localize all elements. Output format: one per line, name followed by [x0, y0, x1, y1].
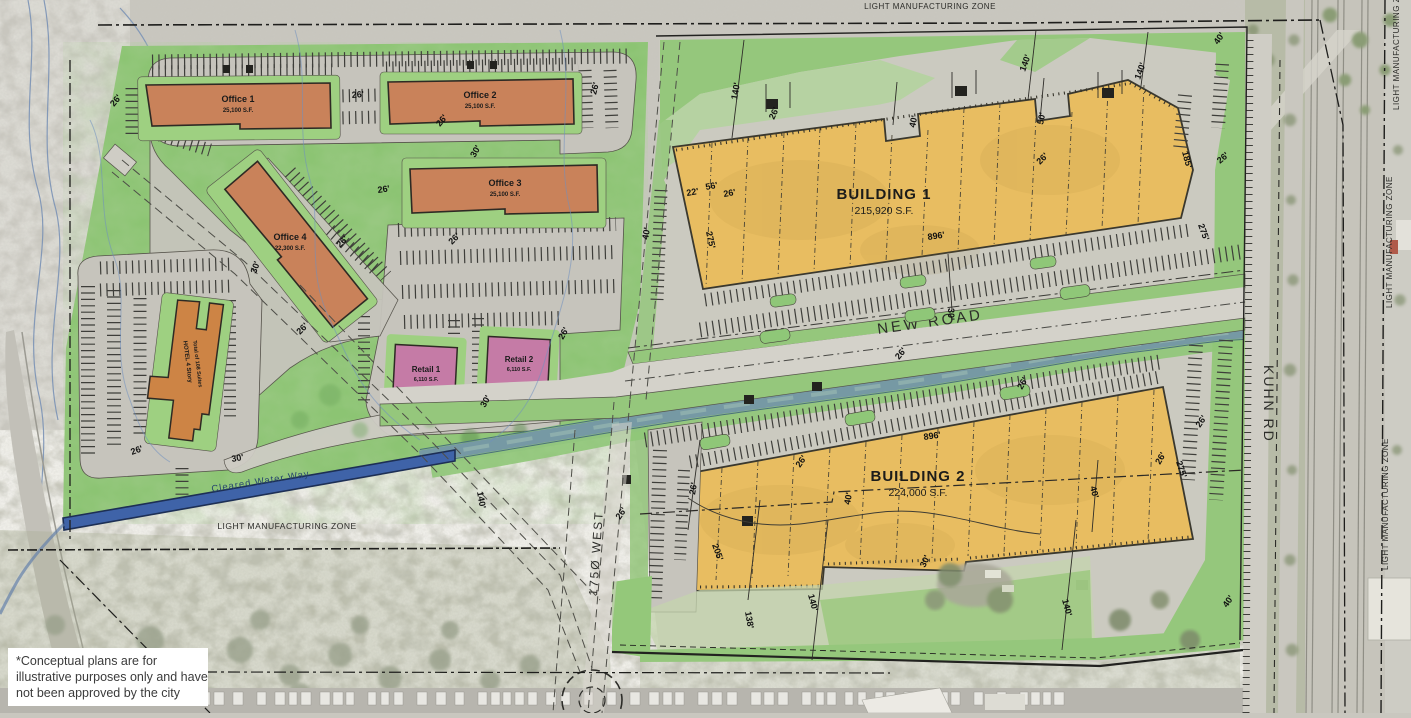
svg-text:LIGHT MANUFACTURING ZONE: LIGHT MANUFACTURING ZONE [1392, 0, 1401, 110]
svg-text:224,000 S.F.: 224,000 S.F. [889, 487, 948, 499]
svg-text:25,100 S.F.: 25,100 S.F. [465, 104, 496, 110]
svg-text:40': 40' [842, 492, 854, 506]
svg-text:25,100 S.F.: 25,100 S.F. [223, 108, 254, 114]
svg-text:LIGHT MANUFACTURING ZONE: LIGHT MANUFACTURING ZONE [1381, 438, 1390, 570]
svg-text:6,110 S.F.: 6,110 S.F. [507, 367, 532, 373]
svg-text:22': 22' [686, 186, 700, 198]
svg-text:6,110 S.F.: 6,110 S.F. [414, 377, 439, 383]
svg-text:LIGHT MANUFACTURING ZONE: LIGHT MANUFACTURING ZONE [864, 2, 996, 11]
svg-text:LIGHT MANUFACTURING ZONE: LIGHT MANUFACTURING ZONE [217, 521, 356, 531]
svg-text:Retail 1: Retail 1 [412, 365, 441, 374]
svg-text:Office 2: Office 2 [463, 90, 496, 100]
svg-text:Retail 2: Retail 2 [505, 355, 534, 364]
svg-text:Office 1: Office 1 [221, 94, 254, 104]
svg-text:30': 30' [946, 308, 956, 320]
svg-text:26': 26' [723, 187, 737, 199]
svg-text:30': 30' [231, 452, 245, 464]
svg-text:LIGHT MANUFACTURING ZONE: LIGHT MANUFACTURING ZONE [1385, 176, 1394, 308]
svg-text:not been approved by the city: not been approved by the city [16, 686, 181, 700]
svg-text:illustrative purposes only and: illustrative purposes only and have [16, 670, 208, 684]
svg-text:215,920 S.F.: 215,920 S.F. [855, 205, 914, 217]
svg-text:26': 26' [377, 183, 390, 195]
svg-text:BUILDING 2: BUILDING 2 [870, 468, 965, 485]
svg-text:56': 56' [705, 180, 719, 192]
svg-text:22,300 S.F.: 22,300 S.F. [275, 246, 306, 252]
svg-text:25,100 S.F.: 25,100 S.F. [490, 192, 521, 198]
svg-text:26': 26' [687, 482, 699, 496]
svg-text:Office 4: Office 4 [273, 232, 306, 242]
svg-text:Office 3: Office 3 [488, 178, 521, 188]
svg-text:26': 26' [351, 89, 364, 100]
svg-text:40': 40' [640, 227, 652, 241]
svg-text:*Conceptual plans are for: *Conceptual plans are for [16, 654, 157, 668]
svg-text:KUHN RD: KUHN RD [1261, 365, 1277, 443]
svg-text:BUILDING 1: BUILDING 1 [836, 186, 931, 203]
